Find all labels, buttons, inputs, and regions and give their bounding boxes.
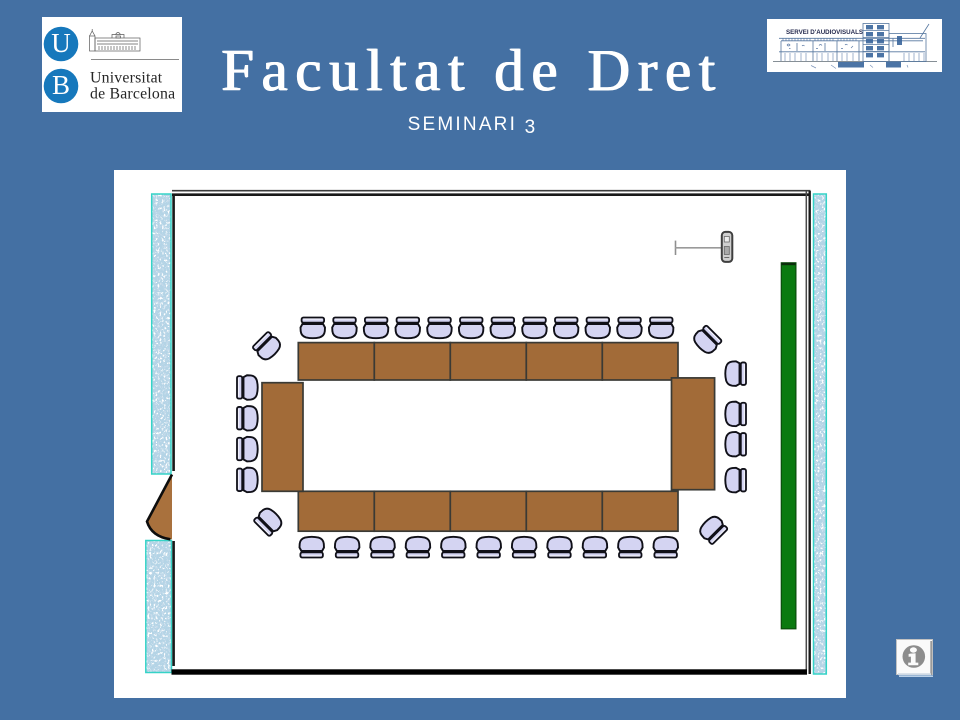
svg-text:de Barcelona: de Barcelona	[90, 86, 175, 103]
svg-text:U: U	[51, 28, 71, 58]
svg-text:Universitat: Universitat	[90, 70, 163, 87]
svg-text:B: B	[52, 70, 70, 100]
svg-text:SERVEI D'AUDIOVISUALS: SERVEI D'AUDIOVISUALS	[786, 29, 863, 36]
